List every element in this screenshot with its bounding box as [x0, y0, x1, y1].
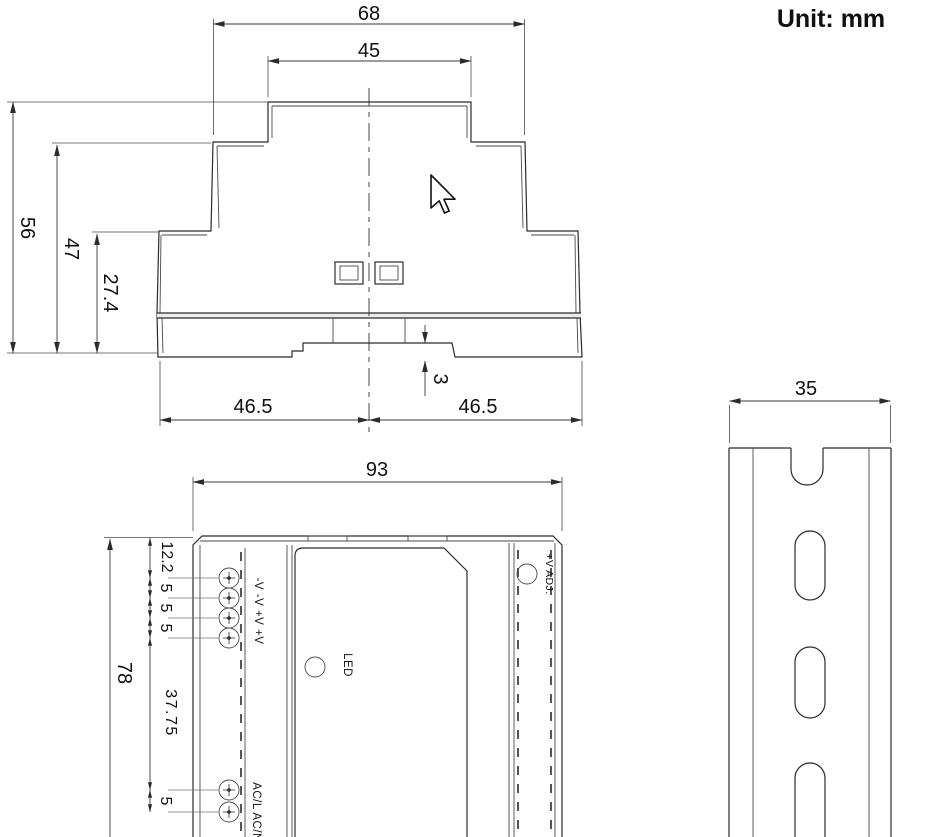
dim-label-overall-width: 68 [358, 3, 380, 25]
dim-label-terminal-gap: 37.75 [162, 689, 179, 737]
dim-label-body-height: 27.4 [99, 274, 121, 313]
screw-terminal [219, 608, 239, 628]
mouse-cursor-icon [431, 175, 455, 213]
rail-top-notch [791, 448, 823, 485]
unit-label: Unit: mm [777, 5, 885, 33]
dim-label-shoulder-height: 47 [60, 238, 82, 260]
mounting-slot [795, 763, 825, 837]
terminal-pitch-chain: 12.2 5 5 5 37.75 5 [150, 538, 179, 812]
dim-body-height: 27.4 [92, 232, 159, 353]
dim-label-rail-recess-depth: 3 [429, 373, 451, 384]
mounting-slot [795, 531, 825, 600]
side-profile-view: 68 45 56 47 27.4 [7, 3, 582, 432]
din-rail-outline [729, 448, 891, 837]
dim-label-half-width-right: 46.5 [459, 396, 498, 418]
dim-label-total-height: 56 [16, 217, 38, 239]
rail-mounting-slots [795, 531, 825, 837]
led-label: LED [341, 653, 353, 677]
screw-terminal [219, 628, 239, 648]
dim-front-height: 78 [104, 538, 193, 837]
led-indicator [305, 657, 325, 677]
screw-terminal [219, 568, 239, 588]
center-cover-panel [295, 548, 467, 837]
dim-label-rail-width: 35 [795, 378, 817, 400]
terminal-screws [219, 568, 239, 822]
mounting-slot [795, 647, 825, 718]
top-clip-tab [408, 536, 447, 541]
dim-label-terminal-pitch-2: 5 [157, 604, 174, 613]
front-face-outline [193, 536, 562, 837]
dim-rail-recess-depth: 3 [425, 325, 451, 396]
dim-label-front-height: 78 [113, 662, 135, 684]
voltage-adjust-potentiometer [517, 564, 537, 584]
top-clip-tab [308, 536, 347, 541]
dim-label-ac-terminal-pitch: 5 [157, 797, 174, 806]
voltage-adjust-label: +V ADJ. [543, 553, 555, 594]
din-rail-view: 35 [729, 378, 891, 837]
dc-terminal-labels: -V -V +V +V [252, 578, 264, 645]
dim-top-width: 45 [268, 40, 471, 97]
dim-label-terminal-offset-top: 12.2 [158, 541, 175, 572]
dim-front-width: 93 [193, 459, 562, 531]
screw-terminal [219, 588, 239, 608]
screw-terminal [219, 802, 239, 822]
dim-label-terminal-pitch-3: 5 [157, 624, 174, 633]
front-face-view: -V -V +V +V AC/L AC/N LED +V ADJ. 93 78 … [104, 459, 562, 837]
side-profile-outline [157, 102, 582, 357]
dim-label-front-width: 93 [366, 459, 388, 481]
dim-half-widths: 46.5 46.5 [160, 361, 582, 426]
screw-terminal [219, 780, 239, 800]
dim-label-half-width-left: 46.5 [234, 396, 273, 418]
dim-label-terminal-pitch-1: 5 [157, 584, 174, 593]
ac-terminal-labels: AC/L AC/N [250, 782, 262, 837]
mechanical-dimension-drawing: 68 45 56 47 27.4 [0, 0, 940, 837]
dim-rail-width: 35 [730, 378, 891, 443]
dim-label-top-width: 45 [358, 40, 380, 62]
dim-shoulder-height: 47 [52, 143, 211, 353]
